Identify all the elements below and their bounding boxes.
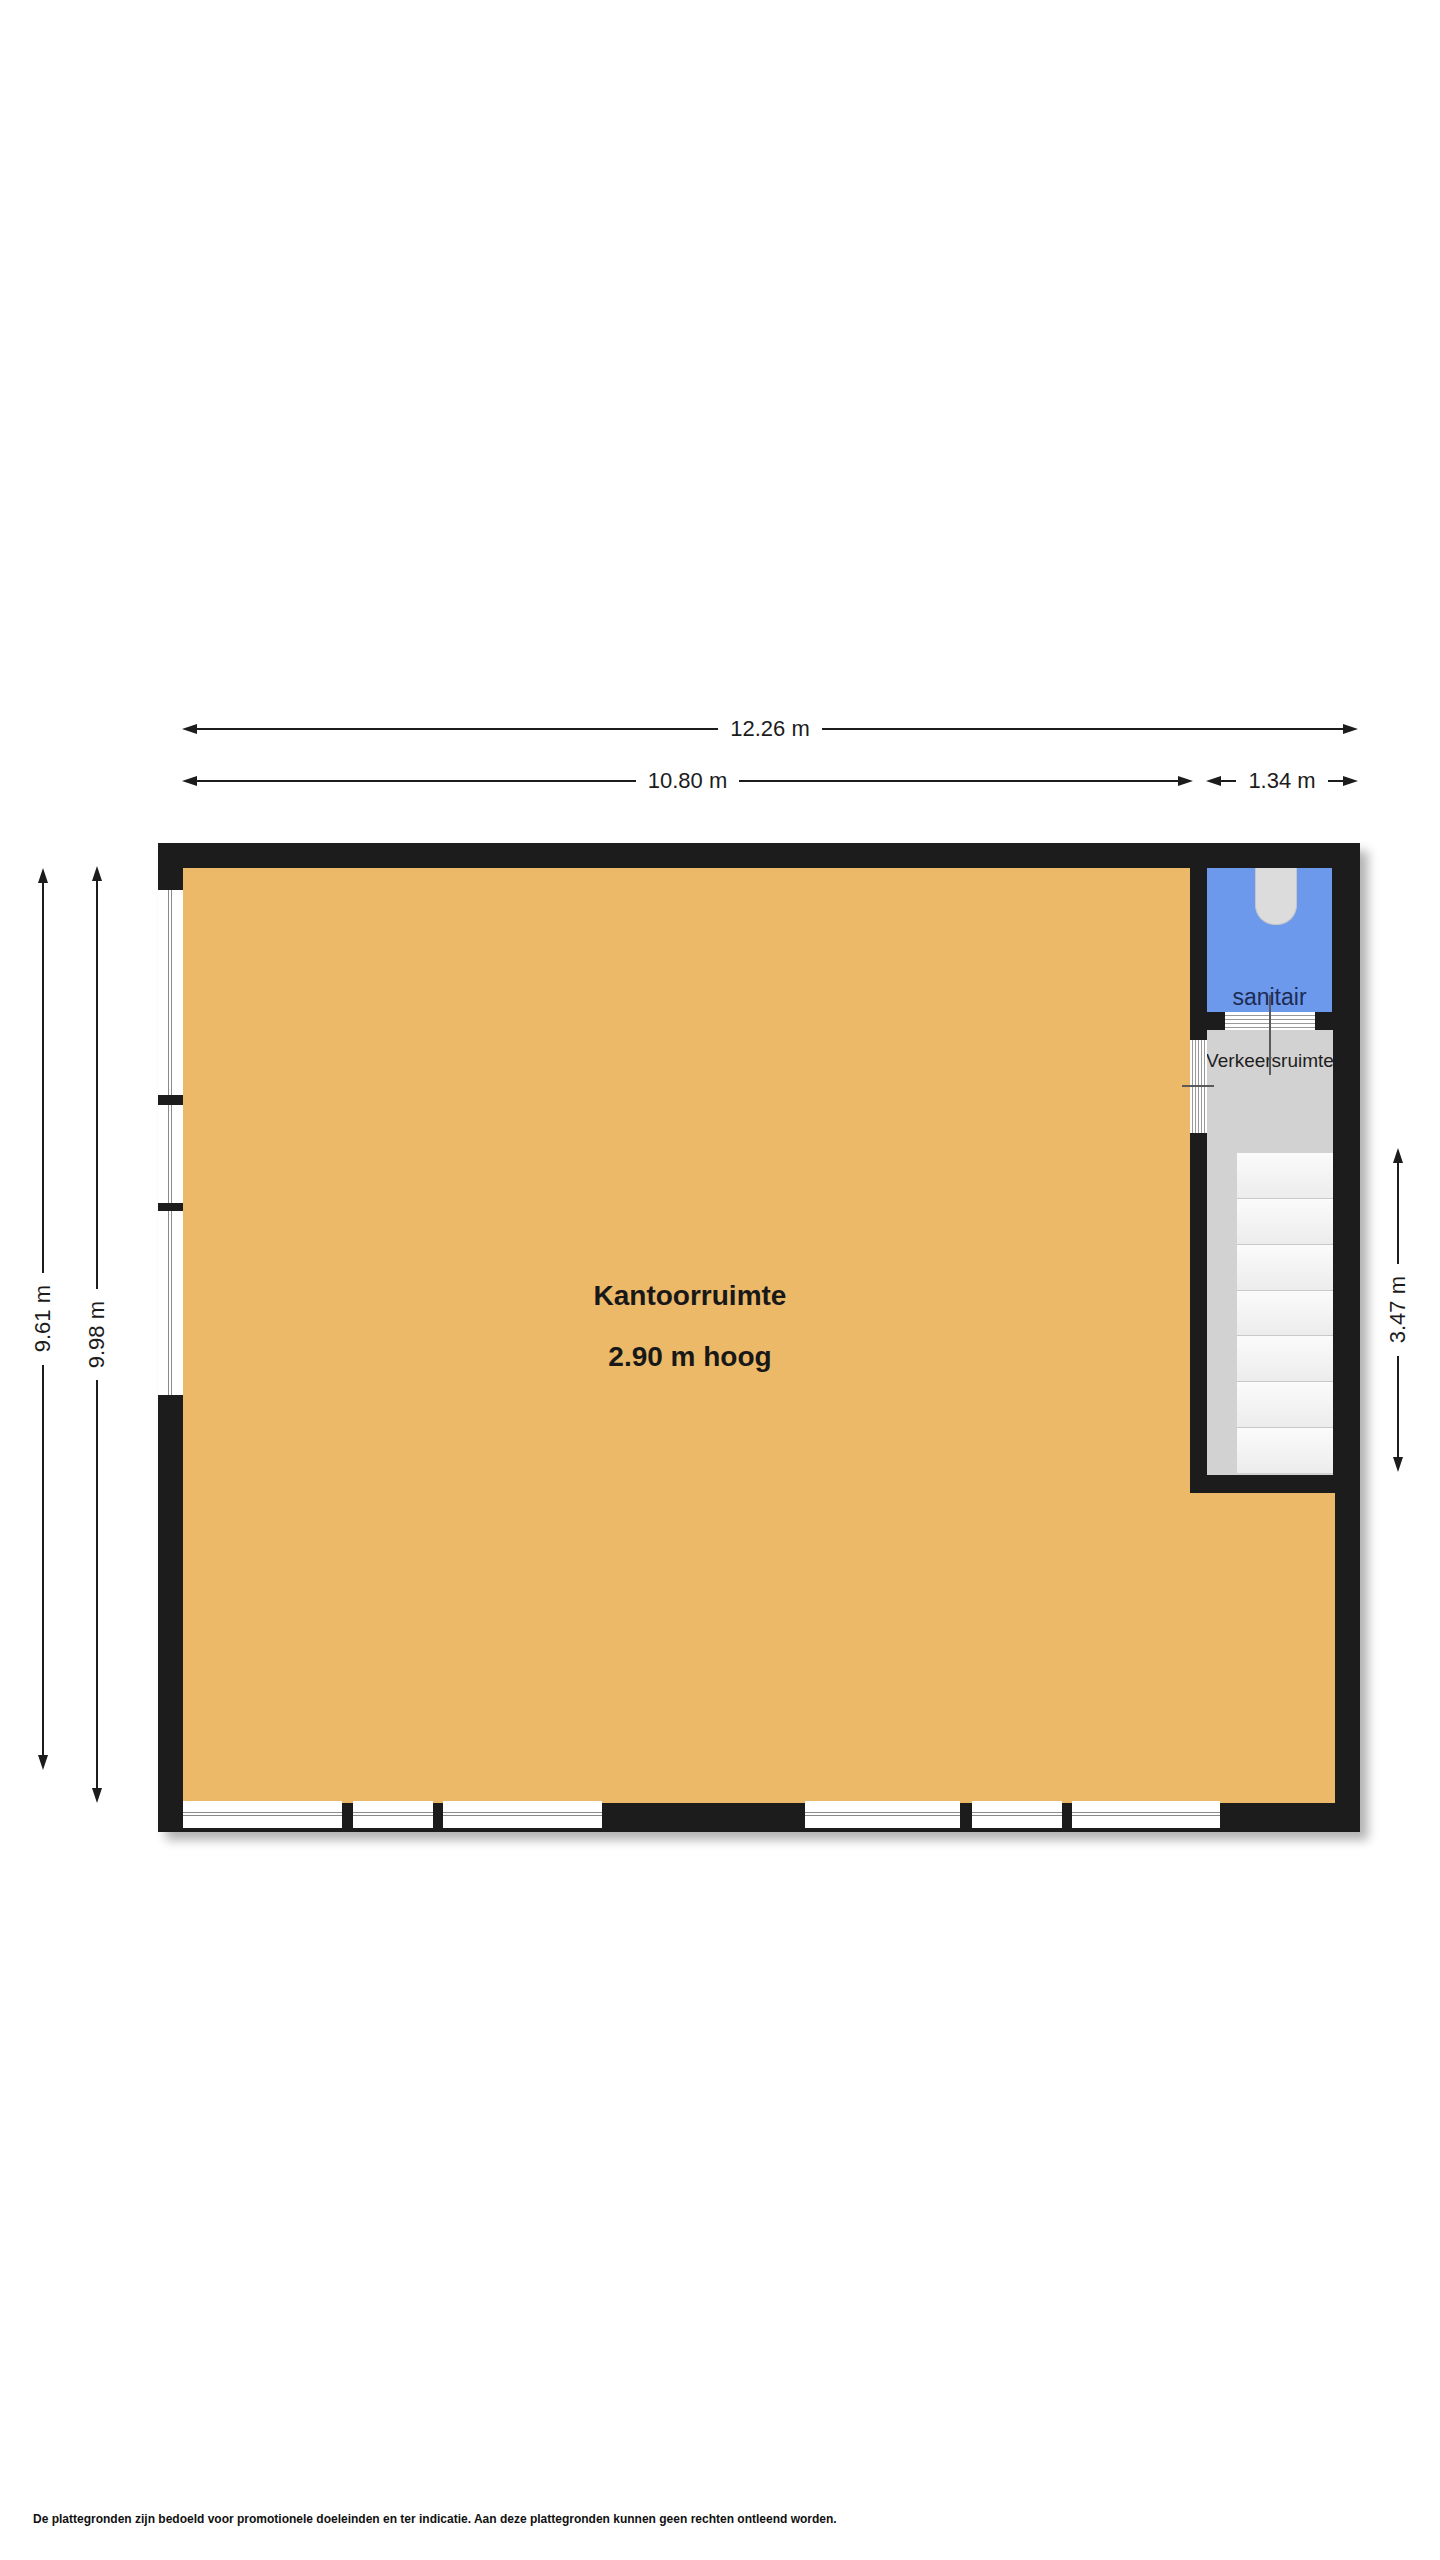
dimension-label-main-width: 10.80 m [636, 768, 740, 794]
dimension-stair-zone-height: 3.47 m [1386, 1148, 1410, 1472]
dimension-left-inner-height: 9.61 m [31, 868, 55, 1770]
arrowhead-right-icon [1178, 776, 1193, 786]
toilet-icon [1255, 868, 1297, 925]
dimension-line [42, 1365, 44, 1755]
window-left-2 [158, 1105, 183, 1203]
arrowhead-right-icon [1343, 776, 1358, 786]
building-outline: Kantoorruimte 2.90 m hoog sanitair Verke… [158, 843, 1360, 1832]
room-kantoorruimte: Kantoorruimte 2.90 m hoog [183, 868, 1335, 1803]
arrowhead-up-icon [1393, 1148, 1403, 1163]
stair-tread [1237, 1153, 1333, 1198]
dimension-column-width: 1.34 m [1206, 769, 1358, 793]
dimension-line [1397, 1356, 1399, 1457]
dimension-total-width: 12.26 m [182, 717, 1358, 741]
arrowhead-down-icon [92, 1788, 102, 1803]
stair-tread [1237, 1198, 1333, 1244]
arrowhead-down-icon [1393, 1457, 1403, 1472]
window-bottom-5 [972, 1801, 1062, 1828]
utility-column: sanitair Verkeersruimte [1190, 843, 1360, 1493]
dimension-label-total-width: 12.26 m [718, 716, 822, 742]
arrowhead-right-icon [1343, 724, 1358, 734]
window-bottom-3 [443, 1801, 602, 1828]
dimension-line [197, 780, 636, 782]
dimension-line [96, 1380, 98, 1788]
disclaimer-text: De plattegronden zijn bedoeld voor promo… [33, 2512, 837, 2526]
arrowhead-up-icon [38, 868, 48, 883]
dimension-line [42, 883, 44, 1273]
dimension-main-width: 10.80 m [182, 769, 1193, 793]
room-sanitair: sanitair [1207, 868, 1332, 1012]
door-swing-line-horizontal [1182, 1085, 1214, 1087]
dimension-label-left-outer-height: 9.98 m [84, 1289, 110, 1380]
room-label-kantoorruimte: Kantoorruimte [183, 1280, 1197, 1312]
dimension-label-column-width: 1.34 m [1236, 768, 1327, 794]
dimension-left-outer-height: 9.98 m [85, 866, 109, 1803]
room-verkeersruimte: Verkeersruimte [1207, 1030, 1333, 1475]
dimension-label-stair-zone-height: 3.47 m [1385, 1264, 1411, 1355]
arrowhead-left-icon [1206, 776, 1221, 786]
stair-tread [1237, 1427, 1333, 1473]
dimension-line [1397, 1163, 1399, 1264]
window-bottom-4 [805, 1801, 960, 1828]
dimension-line [1328, 780, 1343, 782]
dimension-line [1221, 780, 1236, 782]
arrowhead-down-icon [38, 1755, 48, 1770]
arrowhead-up-icon [92, 866, 102, 881]
dimension-line [822, 728, 1343, 730]
room-height-label-kantoorruimte: 2.90 m hoog [183, 1341, 1197, 1373]
window-left-1 [158, 890, 183, 1095]
dimension-line [96, 881, 98, 1289]
window-left-3 [158, 1211, 183, 1395]
window-bottom-2 [353, 1801, 433, 1828]
staircase [1237, 1153, 1333, 1473]
dimension-line [739, 780, 1178, 782]
stair-tread [1237, 1335, 1333, 1381]
door-swing-line-vertical [1269, 995, 1271, 1075]
stair-tread [1237, 1290, 1333, 1336]
arrowhead-left-icon [182, 724, 197, 734]
dimension-label-left-inner-height: 9.61 m [30, 1273, 56, 1364]
window-bottom-1 [183, 1801, 342, 1828]
stair-tread [1237, 1381, 1333, 1427]
stair-tread [1237, 1244, 1333, 1290]
window-bottom-6 [1072, 1801, 1220, 1828]
dimension-line [197, 728, 718, 730]
arrowhead-left-icon [182, 776, 197, 786]
